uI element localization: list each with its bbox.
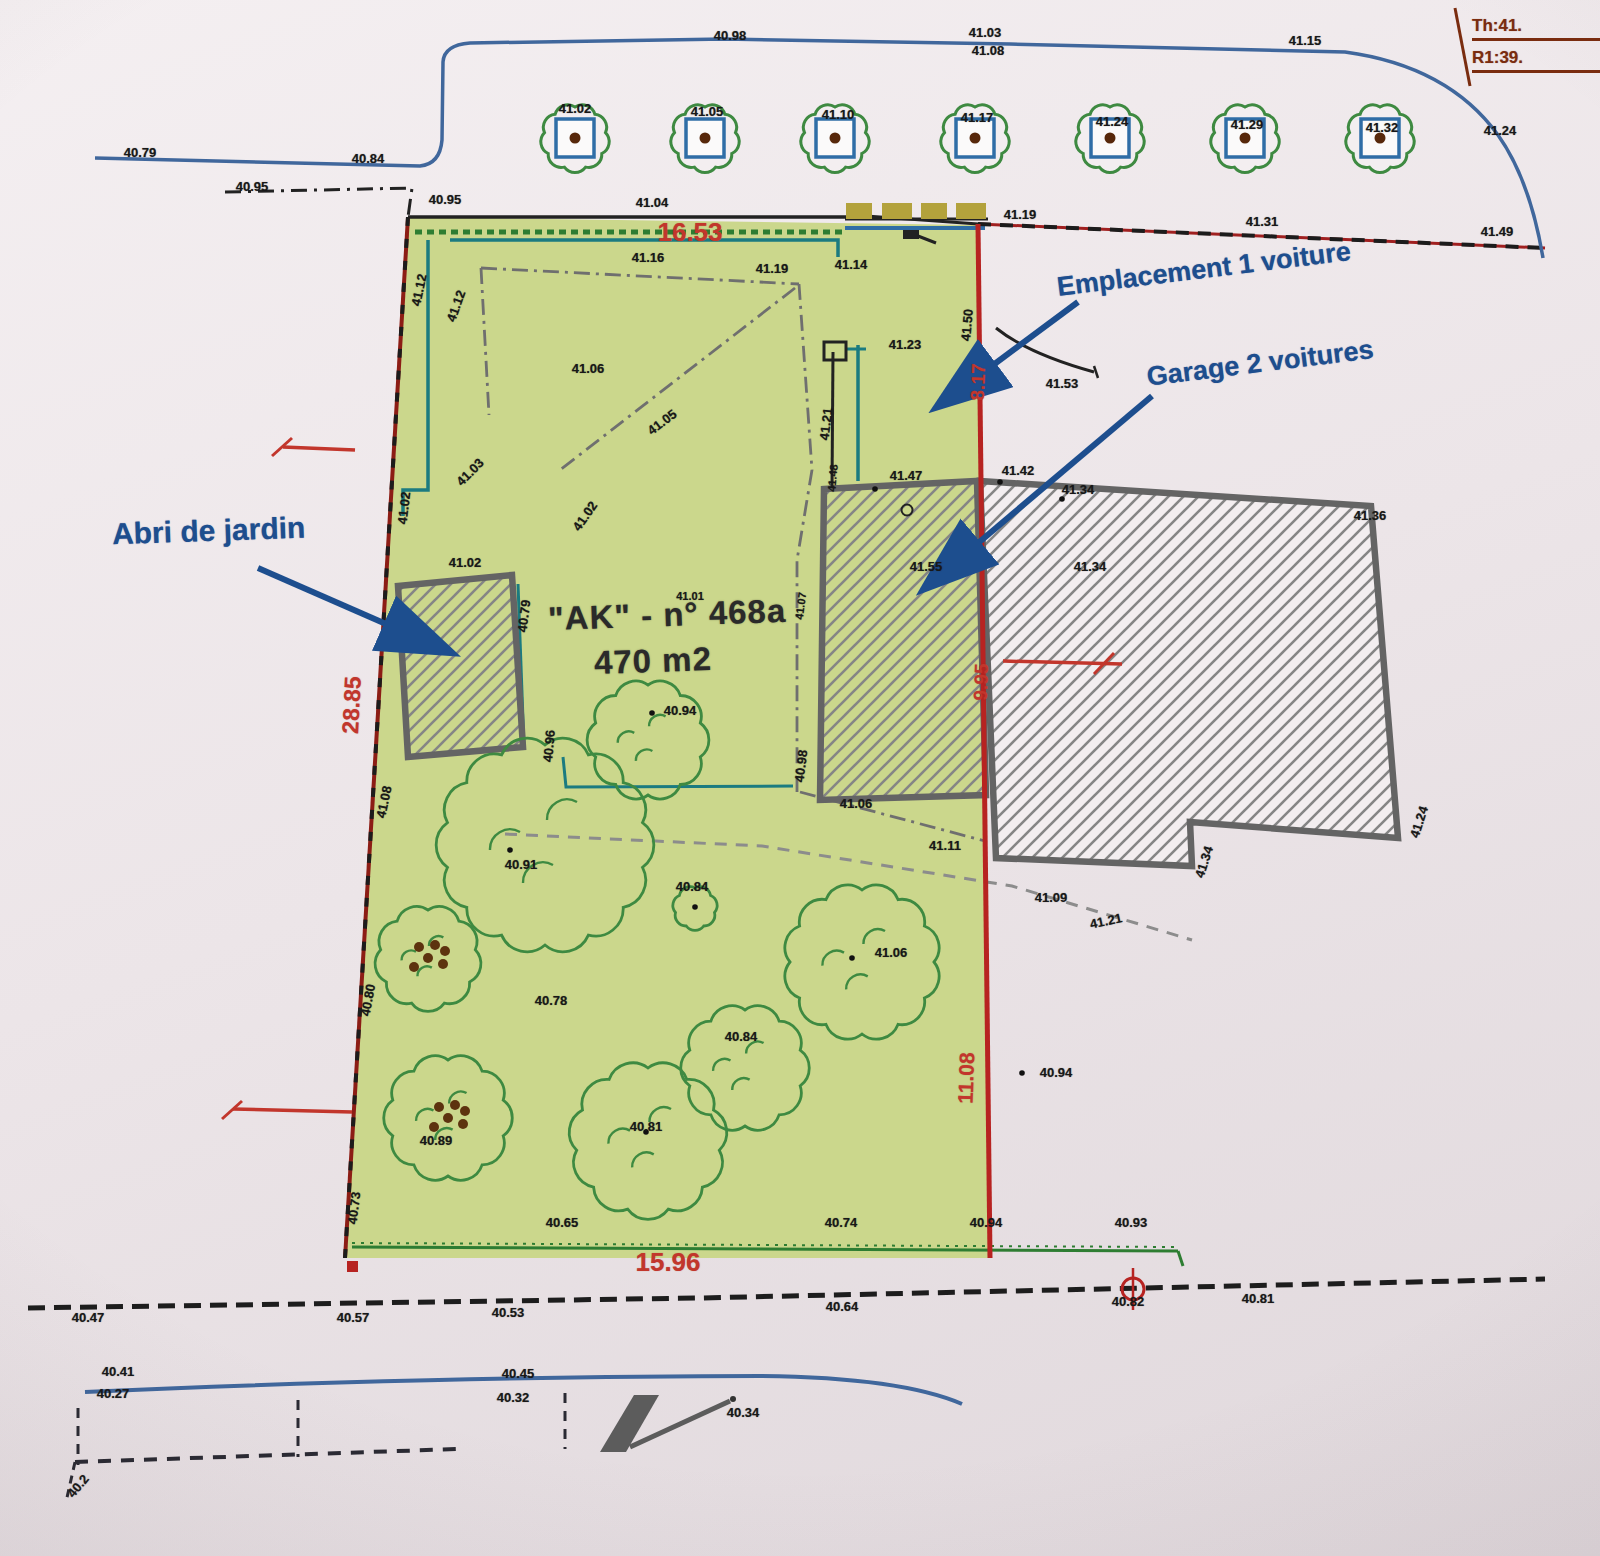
point-dot: [507, 847, 513, 853]
spot-elevation: 41.42: [1002, 464, 1035, 477]
spot-elevation: 40.73: [346, 1191, 363, 1225]
dimension-top: 16.53: [657, 219, 722, 245]
spot-elevation: 41.16: [632, 251, 665, 264]
road-line-bottom: [28, 1279, 1545, 1308]
flower-dot: [438, 959, 448, 969]
spot-elevation: 40.84: [725, 1030, 758, 1043]
spot-elevation: 41.49: [1481, 225, 1514, 238]
flower-dot: [440, 946, 450, 956]
dimension-right-upper: 8.17: [968, 363, 988, 401]
spot-elevation: 40.27: [97, 1387, 130, 1400]
spot-elevation: 40.91: [505, 858, 538, 871]
spot-elevation: 41.34: [1062, 483, 1095, 496]
point-dot: [849, 955, 855, 961]
spot-elevation: 41.02: [396, 491, 413, 525]
tree-trunk-dot: [700, 133, 711, 144]
spot-elevation: 41.19: [756, 262, 789, 275]
point-dot: [872, 486, 878, 492]
flower-dot: [460, 1106, 470, 1116]
flower-dot: [409, 962, 419, 972]
spot-elevation: 40.34: [727, 1406, 760, 1419]
point-dot: [1019, 1070, 1025, 1076]
spot-elevation: 40.94: [970, 1216, 1003, 1229]
spot-elevation: 41.29: [1231, 118, 1264, 131]
site-plan-photo: 40.9841.0341.0841.1541.2441.0241.0541.10…: [0, 0, 1600, 1556]
spot-elevation: 40.95: [236, 180, 269, 193]
flower-dot: [423, 953, 433, 963]
spot-elevation: 41.55: [910, 560, 943, 573]
flower-dot: [434, 1102, 444, 1112]
dimension-left: 28.85: [339, 676, 365, 735]
spot-elevation: 40.57: [337, 1311, 370, 1324]
spot-elevation: 41.04: [636, 196, 669, 209]
dimension-right-lower: 11.08: [955, 1052, 978, 1104]
spot-elevation: 41.23: [889, 338, 922, 351]
spot-elevation: 40.84: [352, 152, 385, 165]
spot-elevation: 41.14: [835, 258, 868, 271]
spot-elevation: 41.32: [1366, 121, 1399, 134]
point-dot: [649, 710, 655, 716]
tree-trunk-dot: [1240, 133, 1251, 144]
spot-elevation: 41.34: [1074, 560, 1107, 573]
spot-elevation: 41.24: [1484, 124, 1517, 137]
flower-dot: [414, 942, 424, 952]
tree-trunk-dot: [830, 133, 841, 144]
spot-elevation: 40.98: [714, 29, 747, 42]
spot-elevation: 41.19: [1004, 208, 1037, 221]
tree-trunk-dot: [570, 133, 581, 144]
spot-elevation: 40.89: [420, 1134, 453, 1147]
spot-elevation: 41.05: [691, 105, 724, 118]
spot-elevation: 40.93: [1115, 1216, 1148, 1229]
spot-elevation: 40.41: [102, 1365, 135, 1378]
spot-elevation: 41.03: [969, 26, 1002, 39]
spot-elevation: 41.11: [929, 839, 961, 852]
spot-elevation: 41.09: [1035, 891, 1068, 904]
spot-elevation: 40.94: [664, 704, 697, 717]
spot-elevation: 41.08: [972, 44, 1005, 57]
spot-elevation: 40.64: [826, 1300, 859, 1313]
flower-dot: [458, 1119, 468, 1129]
callout-shed-label: Abri de jardin: [112, 513, 306, 550]
spot-elevation: 40.74: [825, 1216, 858, 1229]
spot-elevation: 40.96: [541, 729, 557, 763]
tree-trunk-dot: [1105, 133, 1116, 144]
spot-elevation: 40.47: [72, 1311, 105, 1324]
spot-elevation: 40.94: [1040, 1066, 1073, 1079]
spot-elevation: 40.82: [1112, 1295, 1145, 1308]
spot-elevation: 40.53: [492, 1306, 525, 1319]
legend-box: Th:41. R1:39.: [1472, 16, 1600, 80]
spot-elevation: 40.79: [516, 599, 533, 633]
spot-elevation: 40.78: [535, 994, 568, 1007]
spot-elevation: 41.15: [1289, 34, 1322, 47]
spot-elevation: 41.50: [959, 308, 975, 342]
flower-dot: [429, 1122, 439, 1132]
parcel-area-label: 470 m2: [593, 642, 712, 679]
tree-trunk-dot: [970, 133, 981, 144]
spot-elevation: 40.79: [124, 146, 157, 159]
spot-elevation: 41.02: [449, 556, 482, 569]
dimension-right-mid: 9.95: [971, 663, 991, 701]
spot-elevation: 40.32: [497, 1391, 530, 1404]
spot-elevation: 41.24: [1096, 115, 1129, 128]
legend-line-2: R1:39.: [1472, 48, 1600, 73]
spot-elevation: 40.98: [793, 749, 810, 783]
spot-elevation: 40.84: [676, 880, 709, 893]
dimension-bottom: 15.96: [635, 1249, 700, 1275]
point-dot: [692, 904, 698, 910]
spot-elevation: 41.06: [875, 946, 908, 959]
spot-elevation: 40.81: [630, 1120, 663, 1133]
spot-elevation: 40.81: [1242, 1292, 1275, 1305]
spot-elevation: 41.31: [1246, 215, 1279, 228]
spot-elevation: 41.06: [840, 797, 873, 810]
garage-building: [980, 481, 1398, 866]
spot-elevation: 41.06: [572, 362, 605, 375]
parking-building: [820, 481, 986, 800]
legend-line-1: Th:41.: [1472, 16, 1600, 41]
point-dot: [1059, 496, 1065, 502]
spot-elevation: 41.47: [890, 469, 923, 482]
spot-elevation: 41.17: [961, 111, 994, 124]
spot-elevation: 40.95: [429, 193, 462, 206]
flower-dot: [443, 1113, 453, 1123]
point-dot: [997, 479, 1003, 485]
spot-elevation: 41.53: [1046, 377, 1079, 390]
flower-dot: [430, 940, 440, 950]
flower-dot: [450, 1100, 460, 1110]
spot-elevation: 41.10: [822, 108, 855, 121]
spot-elevation: 40.45: [502, 1367, 535, 1380]
spot-elevation: 41.02: [559, 102, 592, 115]
spot-elevation: 41.21: [818, 407, 835, 441]
spot-elevation: 40.65: [546, 1216, 579, 1229]
spot-elevation: 41.36: [1354, 509, 1387, 522]
legend-frame: [1455, 8, 1470, 86]
parcel-id-label: "AK" - n° 468a: [547, 594, 786, 635]
garden-shed: [398, 575, 523, 757]
